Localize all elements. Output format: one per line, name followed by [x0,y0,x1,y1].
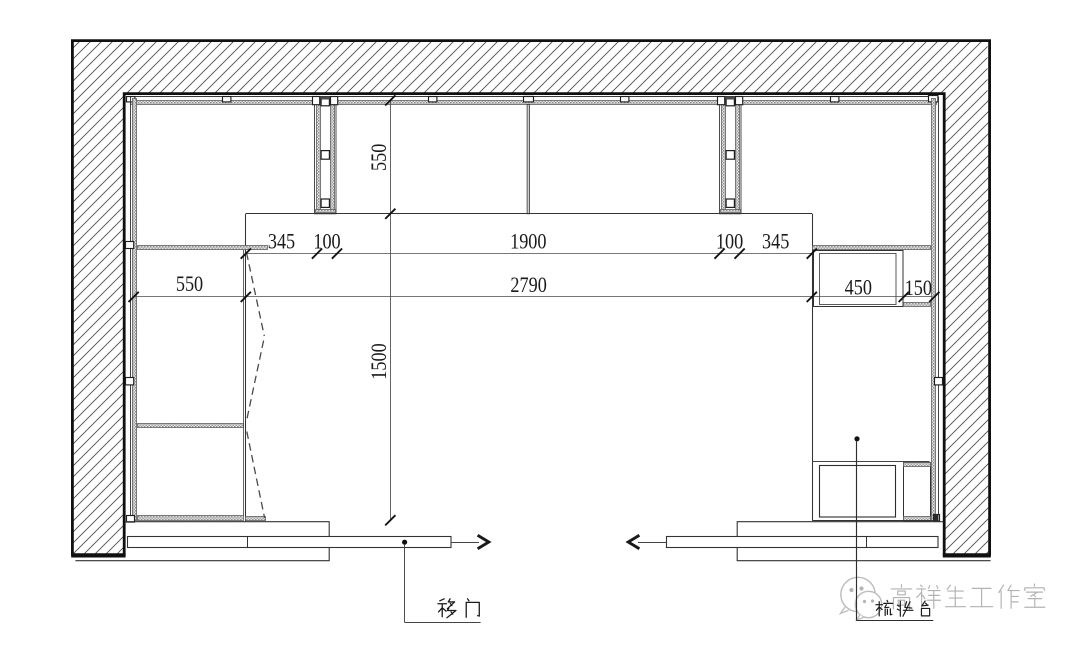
svg-text:100: 100 [716,230,743,254]
svg-text:1900: 1900 [510,230,546,254]
svg-text:450: 450 [845,276,872,300]
svg-text:1500: 1500 [367,343,391,379]
svg-text:150: 150 [905,277,932,301]
svg-text:345: 345 [268,230,295,254]
svg-text:550: 550 [367,144,391,171]
svg-text:2790: 2790 [510,273,546,297]
svg-text:100: 100 [313,230,340,254]
svg-text:345: 345 [762,230,789,254]
svg-text:550: 550 [176,272,203,296]
